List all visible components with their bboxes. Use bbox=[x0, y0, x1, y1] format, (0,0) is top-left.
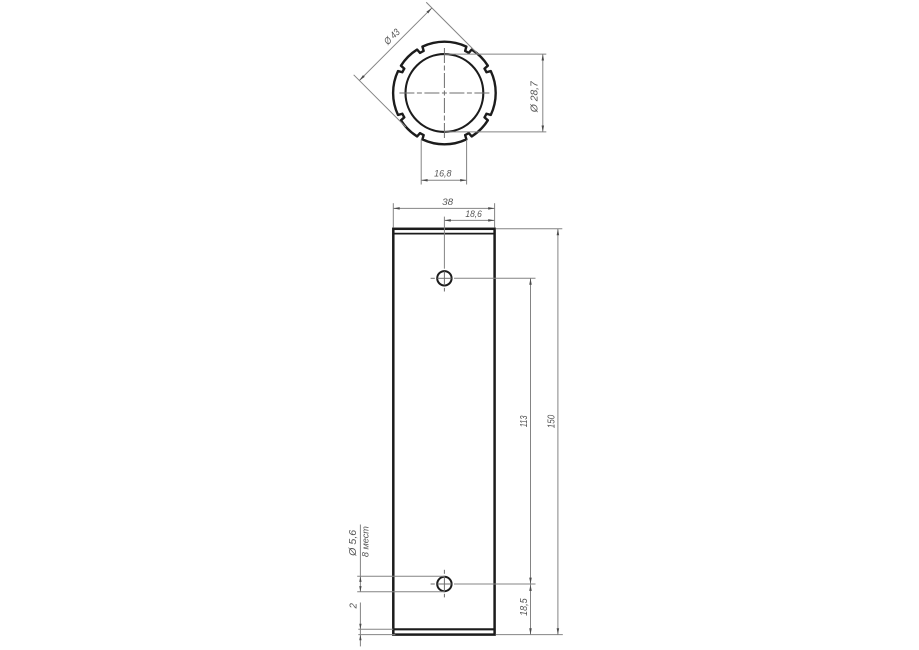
svg-text:16,8: 16,8 bbox=[434, 168, 452, 179]
svg-text:150: 150 bbox=[547, 414, 558, 428]
svg-text:113: 113 bbox=[519, 415, 530, 427]
svg-text:38: 38 bbox=[442, 197, 454, 208]
svg-text:8 мест: 8 мест bbox=[360, 526, 371, 557]
svg-text:Ø 43: Ø 43 bbox=[382, 27, 403, 48]
svg-text:2: 2 bbox=[348, 602, 359, 609]
svg-text:Ø 28,7: Ø 28,7 bbox=[530, 81, 541, 114]
svg-text:18,5: 18,5 bbox=[519, 598, 530, 616]
svg-text:Ø 5,6: Ø 5,6 bbox=[348, 529, 359, 557]
svg-text:18,6: 18,6 bbox=[465, 209, 482, 220]
